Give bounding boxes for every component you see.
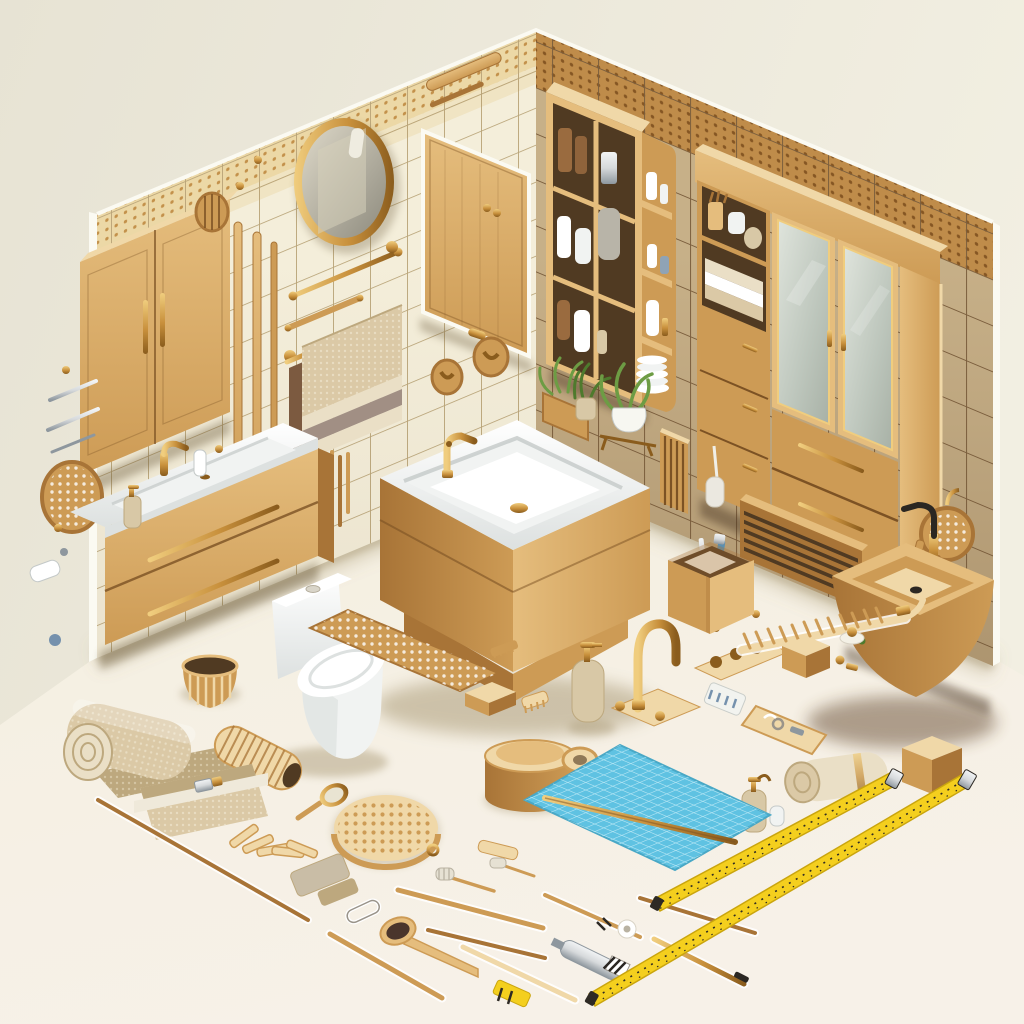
blue-accessory	[49, 634, 61, 646]
slatted-wood-disc	[196, 193, 228, 231]
corner-radiator	[660, 428, 690, 514]
cabinet-handle	[160, 293, 165, 347]
cabinet-handle	[143, 300, 148, 354]
right-wall-edge	[993, 222, 1000, 666]
panel-knob	[493, 209, 501, 217]
panel-knob	[483, 204, 491, 212]
bathroom-illustration: Isometric bathroom corner with wooden fu…	[0, 0, 1024, 1024]
door-handle	[841, 334, 846, 351]
scene-svg: Isometric bathroom corner with wooden fu…	[0, 0, 1024, 1024]
woven-basket	[180, 656, 240, 708]
brass-knob	[254, 156, 262, 164]
door-handle	[827, 330, 832, 347]
sink-drain	[910, 587, 922, 594]
flush-button	[306, 586, 320, 593]
round-bristle-brush	[332, 795, 440, 868]
tub-drain	[510, 503, 528, 513]
brass-knob	[236, 182, 244, 190]
